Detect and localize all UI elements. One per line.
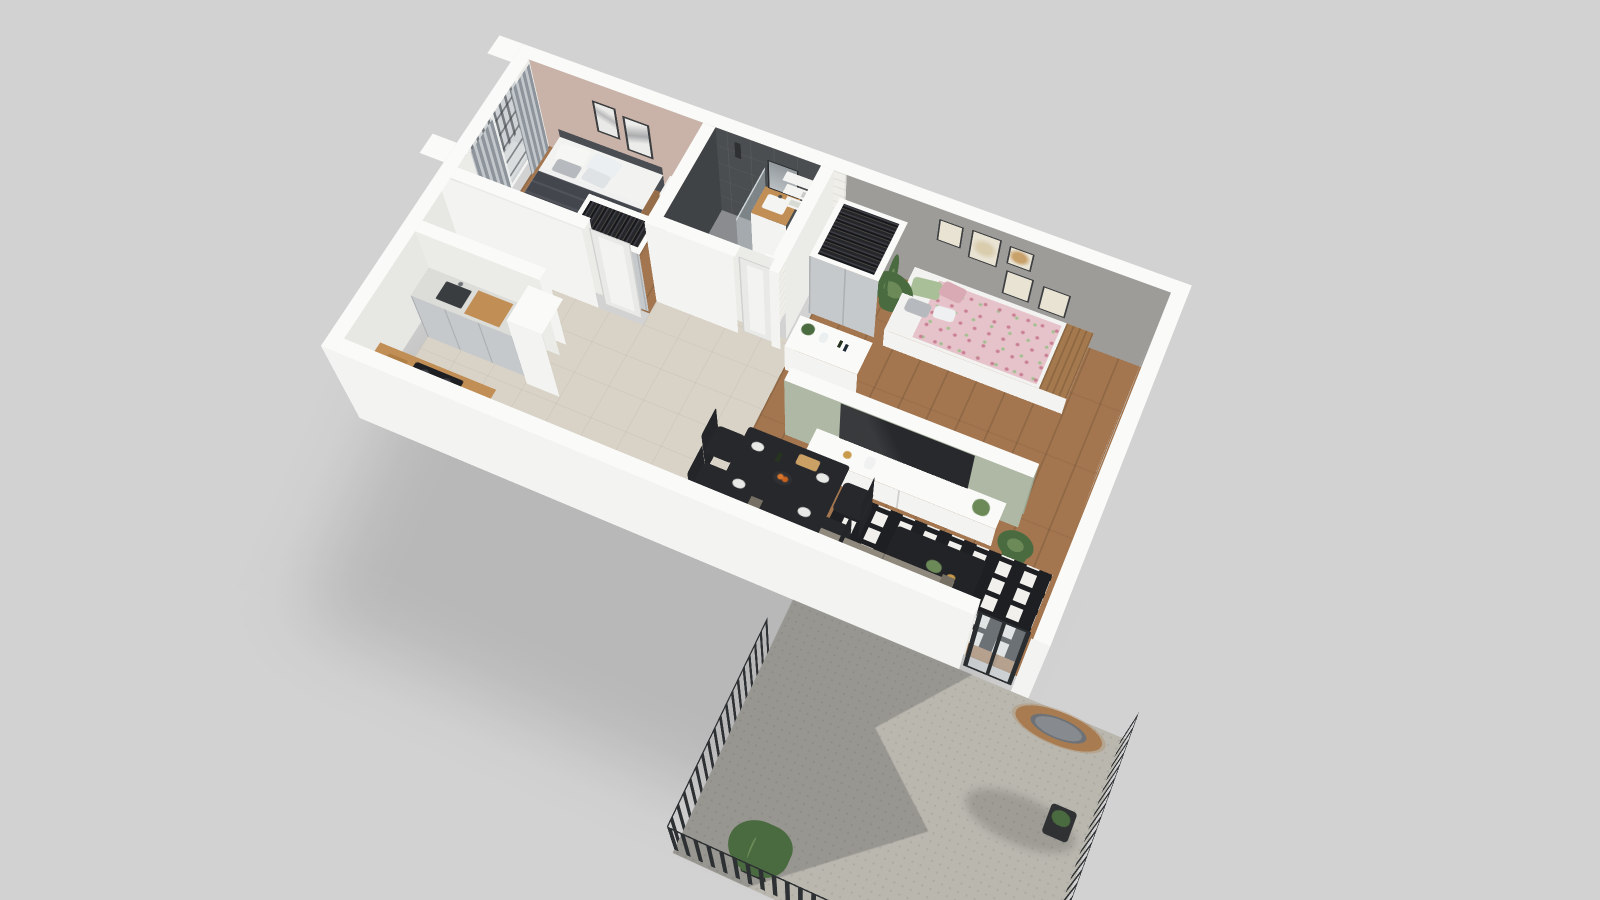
apartment-3d-model — [167, 98, 1367, 900]
shower-head — [734, 142, 741, 159]
table-bottle — [775, 452, 784, 462]
console-bottle — [837, 340, 844, 348]
console-plant — [799, 322, 817, 338]
plate — [796, 505, 813, 518]
candle — [842, 450, 854, 461]
plate — [750, 440, 766, 453]
bathroom-front-wall-hall-face-b — [769, 270, 781, 350]
planter-greenery — [1049, 808, 1072, 830]
deco-vase — [862, 455, 877, 471]
cabinet-plant — [970, 497, 993, 519]
plate — [731, 477, 747, 490]
scene-3d — [0, 0, 1600, 900]
kitchen-faucet — [457, 281, 464, 287]
console-bottle — [842, 344, 849, 352]
serving-board — [795, 453, 821, 472]
fruit-bowl — [771, 469, 795, 488]
console-vase — [817, 332, 830, 345]
floorplan-render — [0, 0, 1600, 900]
plate — [814, 471, 830, 484]
kitchen-sink — [435, 281, 472, 309]
